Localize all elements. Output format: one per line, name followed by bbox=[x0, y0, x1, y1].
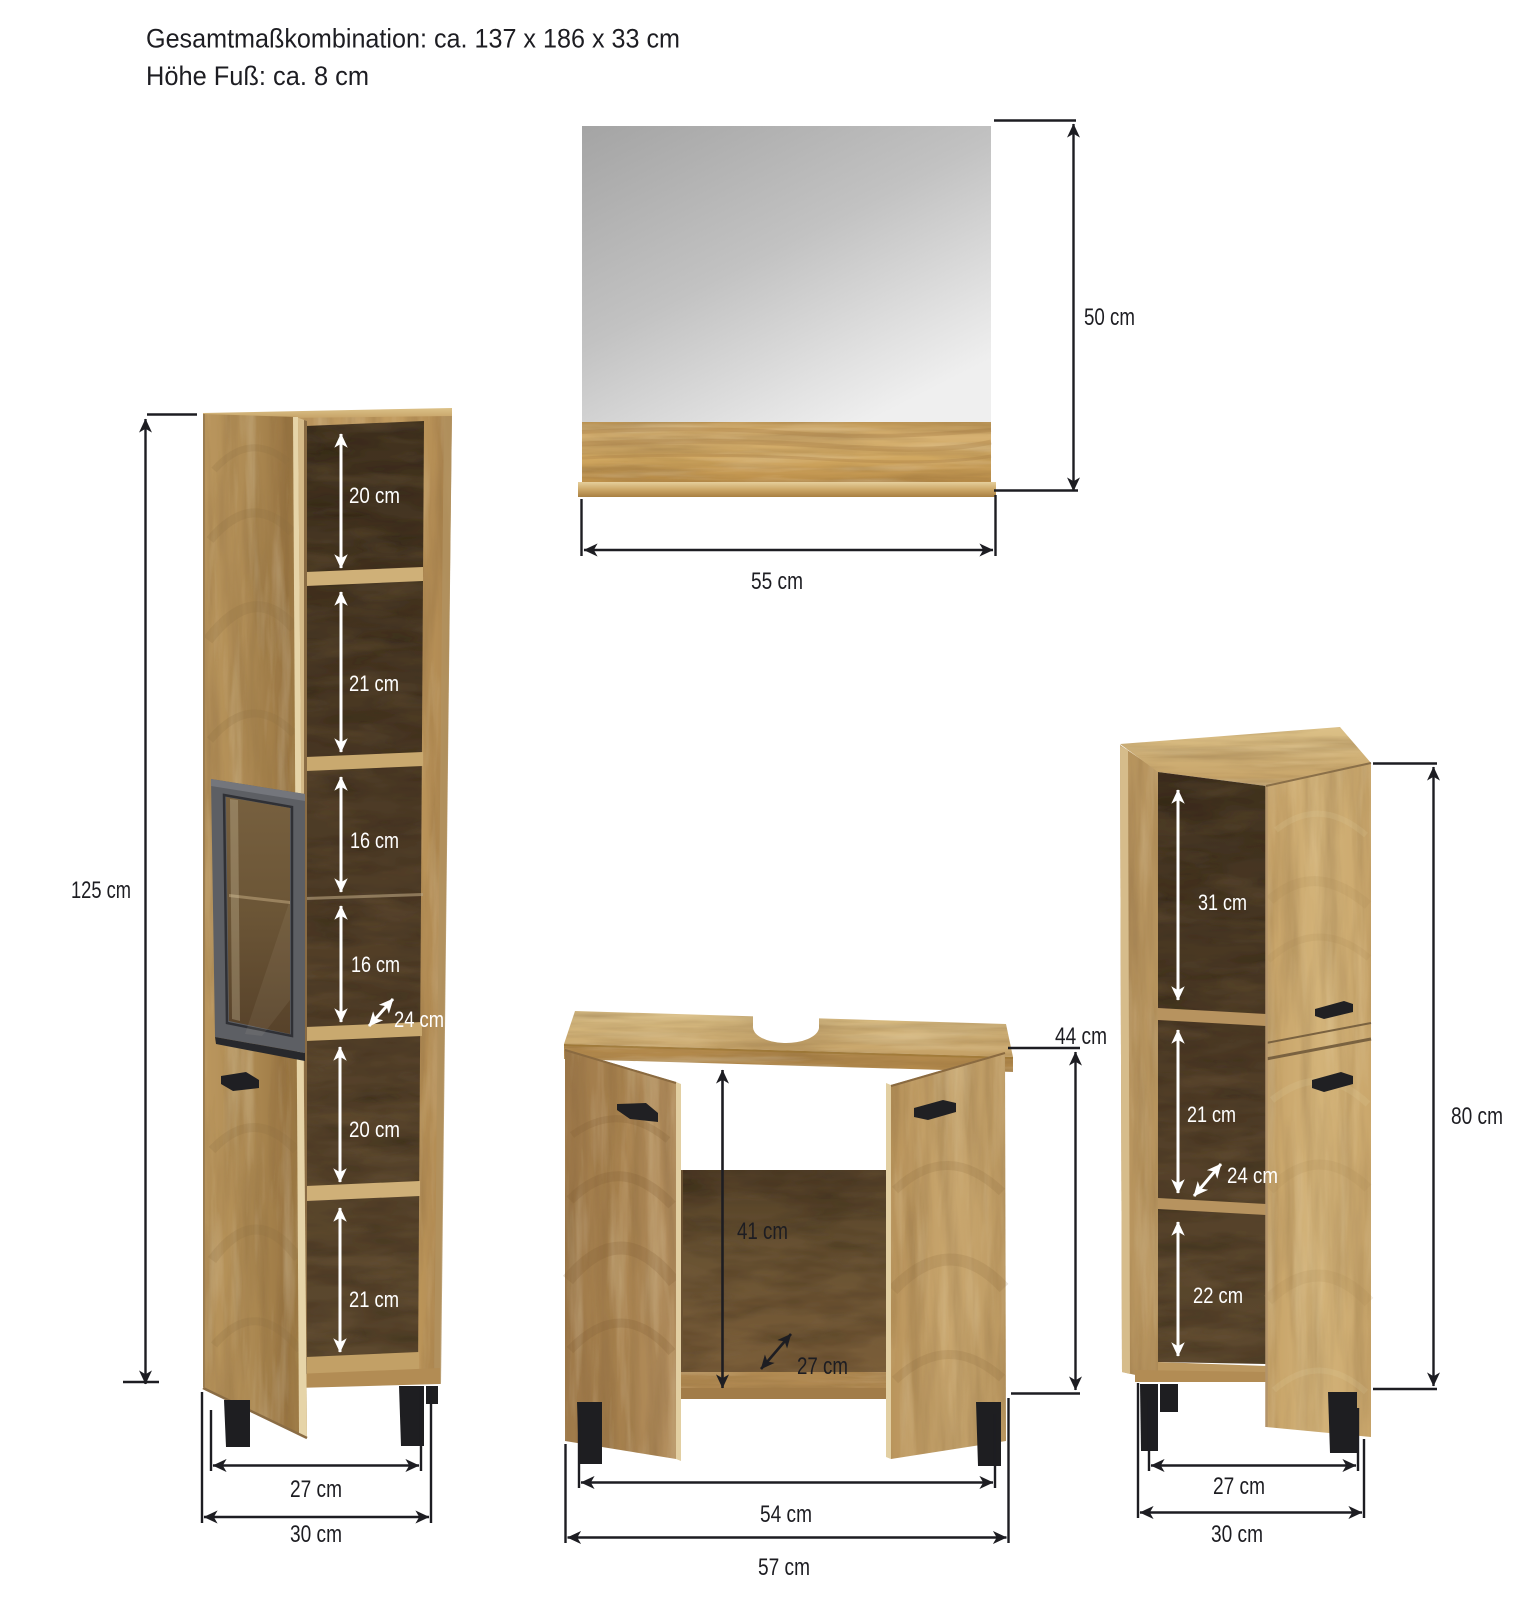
svg-text:24 cm: 24 cm bbox=[394, 1007, 444, 1032]
svg-text:24 cm: 24 cm bbox=[1227, 1163, 1278, 1188]
svg-text:54 cm: 54 cm bbox=[760, 1501, 812, 1528]
svg-text:16 cm: 16 cm bbox=[350, 828, 399, 853]
svg-text:21 cm: 21 cm bbox=[349, 1287, 399, 1312]
svg-text:Höhe Fuß: ca. 8 cm: Höhe Fuß: ca. 8 cm bbox=[146, 61, 369, 91]
svg-text:Gesamtmaßkombination: ca. 137: Gesamtmaßkombination: ca. 137 x 186 x 33… bbox=[146, 24, 680, 54]
svg-text:27 cm: 27 cm bbox=[290, 1476, 342, 1503]
svg-text:125 cm: 125 cm bbox=[71, 877, 131, 904]
svg-text:30 cm: 30 cm bbox=[290, 1521, 342, 1548]
svg-text:20 cm: 20 cm bbox=[349, 1117, 400, 1142]
svg-text:27 cm: 27 cm bbox=[1213, 1473, 1265, 1500]
svg-text:20 cm: 20 cm bbox=[349, 483, 400, 508]
svg-text:21 cm: 21 cm bbox=[1187, 1102, 1236, 1127]
svg-text:50 cm: 50 cm bbox=[1084, 304, 1135, 331]
svg-text:44 cm: 44 cm bbox=[1055, 1023, 1107, 1050]
svg-text:16 cm: 16 cm bbox=[351, 952, 400, 977]
svg-text:22 cm: 22 cm bbox=[1193, 1283, 1243, 1308]
svg-text:57 cm: 57 cm bbox=[758, 1554, 810, 1581]
svg-text:21 cm: 21 cm bbox=[349, 671, 399, 696]
svg-text:41 cm: 41 cm bbox=[737, 1218, 788, 1245]
svg-text:55 cm: 55 cm bbox=[751, 568, 803, 595]
svg-text:30 cm: 30 cm bbox=[1211, 1521, 1263, 1548]
svg-text:80 cm: 80 cm bbox=[1451, 1103, 1503, 1130]
svg-text:27 cm: 27 cm bbox=[797, 1353, 848, 1380]
svg-text:31 cm: 31 cm bbox=[1198, 890, 1247, 915]
